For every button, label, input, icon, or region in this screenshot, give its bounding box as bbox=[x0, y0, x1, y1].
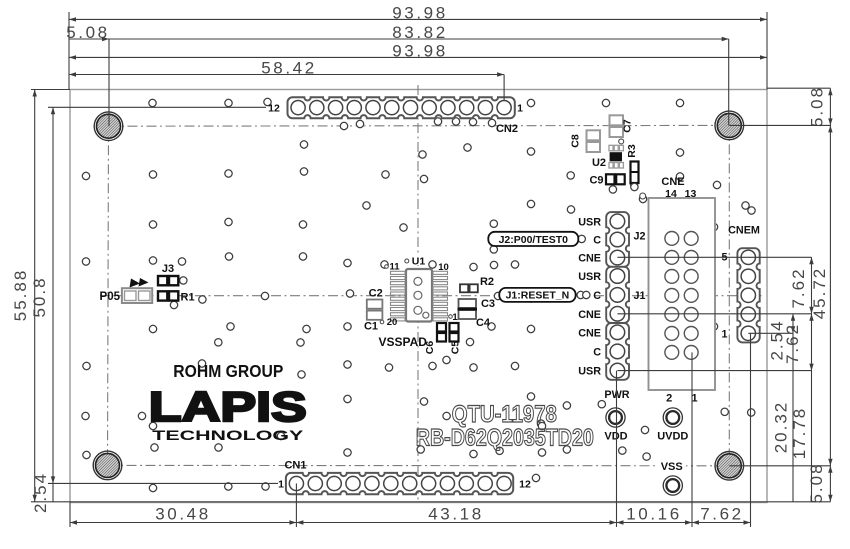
svg-text:10.16: 10.16 bbox=[626, 505, 682, 524]
svg-text:UVDD: UVDD bbox=[657, 431, 688, 443]
svg-text:2.54: 2.54 bbox=[31, 472, 50, 513]
svg-text:TECHNOLOGY: TECHNOLOGY bbox=[152, 428, 303, 443]
svg-text:CNE: CNE bbox=[661, 176, 684, 188]
svg-text:USR: USR bbox=[578, 366, 601, 378]
svg-text:2: 2 bbox=[666, 393, 672, 405]
svg-text:C1: C1 bbox=[364, 321, 378, 333]
svg-text:12: 12 bbox=[519, 479, 531, 491]
svg-text:J2: J2 bbox=[634, 231, 646, 243]
svg-text:5.08: 5.08 bbox=[808, 86, 827, 127]
svg-text:C: C bbox=[593, 290, 601, 302]
svg-text:CN2: CN2 bbox=[496, 123, 518, 135]
svg-text:10: 10 bbox=[438, 262, 449, 273]
svg-text:R3: R3 bbox=[626, 144, 638, 158]
svg-text:C2: C2 bbox=[369, 288, 383, 300]
svg-text:5.08: 5.08 bbox=[66, 23, 110, 42]
svg-text:17.78: 17.78 bbox=[790, 407, 809, 460]
svg-text:VSSPAD: VSSPAD bbox=[378, 335, 427, 349]
svg-text:LAPIS: LAPIS bbox=[149, 383, 307, 430]
svg-text:CNE: CNE bbox=[578, 327, 601, 339]
svg-text:C5: C5 bbox=[450, 341, 462, 355]
svg-text:C9: C9 bbox=[589, 175, 603, 187]
svg-text:C: C bbox=[593, 235, 601, 247]
svg-text:20.32: 20.32 bbox=[772, 401, 791, 454]
svg-text:30.48: 30.48 bbox=[155, 505, 211, 524]
svg-text:58.42: 58.42 bbox=[261, 58, 317, 77]
svg-text:43.18: 43.18 bbox=[428, 505, 484, 524]
svg-text:U1: U1 bbox=[412, 256, 426, 268]
svg-text:1: 1 bbox=[278, 479, 284, 491]
svg-text:93.98: 93.98 bbox=[392, 41, 448, 60]
svg-text:RB-D62Q2035TD20: RB-D62Q2035TD20 bbox=[416, 425, 594, 452]
svg-text:50.8: 50.8 bbox=[30, 276, 49, 317]
svg-text:USR: USR bbox=[578, 216, 601, 228]
svg-text:PWR: PWR bbox=[604, 389, 629, 401]
svg-text:5.08: 5.08 bbox=[807, 462, 826, 503]
svg-text:7.62: 7.62 bbox=[789, 267, 808, 308]
svg-text:J3: J3 bbox=[162, 263, 174, 275]
svg-text:J2:P00/TEST0: J2:P00/TEST0 bbox=[499, 234, 569, 246]
svg-text:USR: USR bbox=[578, 271, 601, 283]
svg-text:CNE: CNE bbox=[578, 253, 601, 265]
svg-text:11: 11 bbox=[389, 262, 400, 273]
svg-text:13: 13 bbox=[685, 188, 697, 200]
svg-text:P05: P05 bbox=[100, 291, 121, 303]
svg-text:R1: R1 bbox=[181, 292, 195, 304]
svg-text:20: 20 bbox=[387, 317, 398, 328]
svg-text:J1: J1 bbox=[634, 290, 646, 302]
svg-text:CNEM: CNEM bbox=[728, 225, 760, 237]
svg-text:C: C bbox=[593, 346, 601, 358]
svg-text:J1:RESET_N: J1:RESET_N bbox=[506, 290, 570, 302]
svg-text:CNE: CNE bbox=[578, 309, 601, 321]
svg-text:C4: C4 bbox=[476, 317, 491, 329]
svg-text:C8: C8 bbox=[570, 134, 582, 148]
svg-text:93.98: 93.98 bbox=[392, 3, 448, 22]
svg-text:7.62: 7.62 bbox=[783, 323, 802, 364]
svg-text:VSS: VSS bbox=[661, 461, 683, 473]
svg-text:12: 12 bbox=[268, 103, 280, 115]
svg-text:1: 1 bbox=[517, 103, 523, 115]
svg-text:14: 14 bbox=[665, 188, 677, 200]
svg-text:U2: U2 bbox=[592, 157, 606, 169]
svg-text:C3: C3 bbox=[481, 298, 495, 310]
svg-text:C7: C7 bbox=[622, 119, 634, 133]
svg-text:45.72: 45.72 bbox=[810, 267, 829, 320]
svg-text:7.62: 7.62 bbox=[700, 505, 744, 524]
svg-text:1: 1 bbox=[721, 328, 727, 340]
svg-text:R2: R2 bbox=[480, 276, 494, 288]
svg-text:83.82: 83.82 bbox=[392, 23, 448, 42]
svg-text:ROHM GROUP: ROHM GROUP bbox=[173, 361, 283, 381]
svg-text:1: 1 bbox=[452, 312, 458, 323]
svg-text:CN1: CN1 bbox=[284, 460, 306, 472]
svg-text:55.88: 55.88 bbox=[11, 269, 30, 322]
